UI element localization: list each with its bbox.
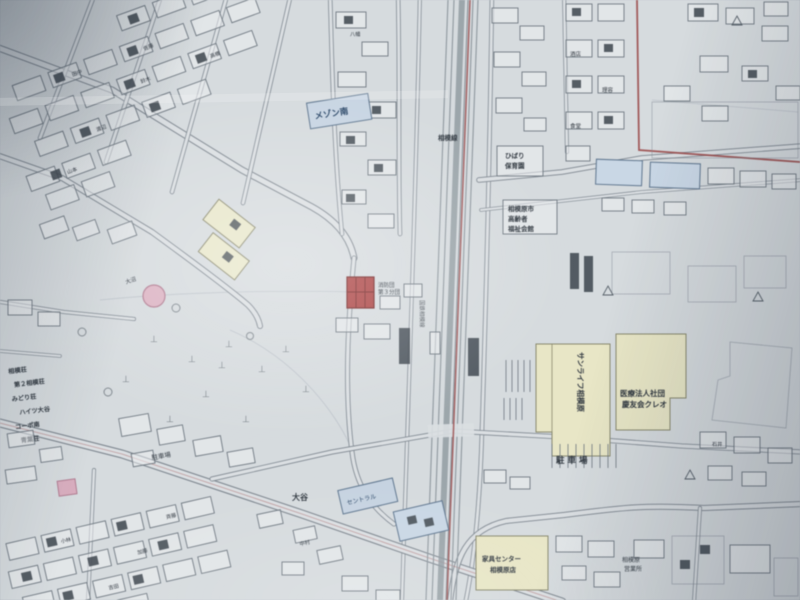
label-railway-side: 国鉄相模線 <box>418 300 426 328</box>
label-store: 家具センター <box>482 554 521 563</box>
resident-name-label: 八幡 <box>350 30 361 38</box>
red-public-building <box>347 277 374 308</box>
field-symbol-icon: ⊥ <box>302 385 310 395</box>
field-symbol-icon: ⊥ <box>282 345 290 355</box>
field-symbol-icon: ⊥ <box>218 361 226 371</box>
label-railway: 相模線 <box>438 133 458 142</box>
field-symbol-icon: ⊥ <box>188 355 196 365</box>
map-photo: 田中 佐藤 鈴木 高橋 渡辺 山本 八幡 メゾン南 ひばり 保育園 相模原市 高… <box>0 0 800 600</box>
landmark-square-symbol <box>57 479 77 496</box>
field-symbol-icon: ⊥ <box>258 365 266 375</box>
field-symbol-icon: ⊥ <box>242 415 250 425</box>
label-hospital: 医療法人社団 <box>620 388 665 398</box>
shop-label: 理容 <box>602 86 614 94</box>
field-symbol-icon: ⊥ <box>122 375 130 385</box>
label-fire: 消防団 <box>378 281 395 289</box>
field-symbol-icon: ⊥ <box>166 415 174 425</box>
label-otani: 大谷 <box>292 492 309 502</box>
label-hospital: 慶友会クレオ <box>622 399 667 409</box>
yellow-store-building <box>476 536 548 590</box>
label-fire: 第３分団 <box>378 288 401 296</box>
field-symbol-icon: ⊥ <box>225 340 233 350</box>
label-nursery: ひばり <box>505 151 525 160</box>
label-welfare: 福祉会館 <box>507 224 535 233</box>
label-vertical-store: サンライフ相模原 <box>576 352 586 412</box>
label-office: 営業所 <box>624 565 642 573</box>
shop-label: 酒店 <box>570 50 582 58</box>
shop-label: 食堂 <box>570 122 582 130</box>
railway-crossing <box>428 423 474 438</box>
field-symbol-icon: ⊥ <box>202 390 210 400</box>
label-parking-main: 駐車場 <box>556 455 591 466</box>
label-nursery: 保育園 <box>504 161 525 170</box>
map-drawing: 田中 佐藤 鈴木 高橋 渡辺 山本 八幡 メゾン南 ひばり 保育園 相模原市 高… <box>0 0 800 600</box>
field-symbol-icon: ⊥ <box>150 335 158 345</box>
label-welfare: 高齢者 <box>508 214 528 223</box>
resident-name-label: 石井 <box>712 440 722 448</box>
label-office: 相模原 <box>622 556 640 564</box>
label-welfare: 相模原市 <box>508 204 535 213</box>
landmark-circle-symbol <box>143 285 165 307</box>
label-store: 相模原店 <box>490 565 517 574</box>
